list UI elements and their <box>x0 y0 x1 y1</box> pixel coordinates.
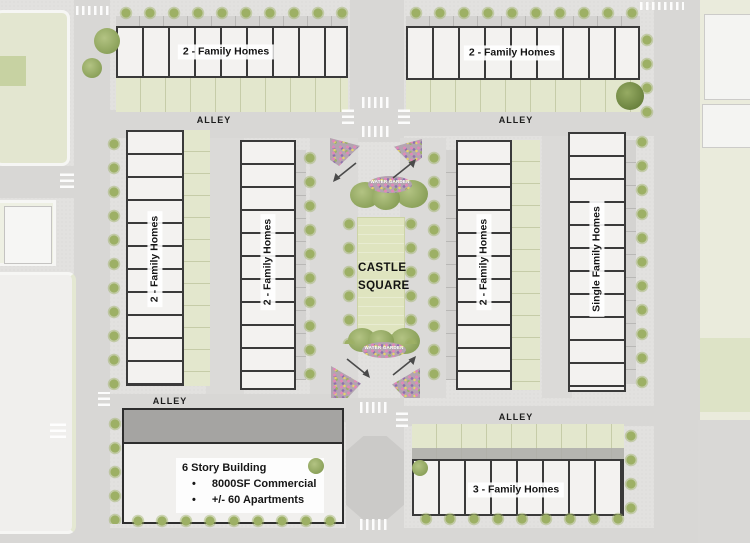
street-east <box>654 0 700 543</box>
crosswalk <box>360 519 388 530</box>
crosswalk <box>640 2 684 10</box>
crosswalk <box>60 172 74 188</box>
flow-arrow-top-right-icon <box>388 157 420 181</box>
offsite-parcel-southwest <box>0 272 76 534</box>
block-label-east: Single Family Homes <box>589 201 604 317</box>
tree-col-west <box>104 132 124 390</box>
tree-row-bottom-right <box>414 510 626 528</box>
alley-label-top-right: ALLEY <box>499 115 534 125</box>
tree-row-building-south <box>126 512 338 530</box>
offsite-building-west <box>4 206 52 264</box>
alley-road-bottom-right <box>396 406 682 426</box>
block-label-center-east: 2 - Family Homes <box>476 214 491 310</box>
yards-center-east <box>512 140 540 390</box>
building-bullet-text: +/- 60 Apartments <box>212 493 304 509</box>
tree-col-building-west <box>106 412 124 524</box>
offsite-green-east <box>700 338 750 412</box>
street-inner-west <box>206 126 244 398</box>
flow-arrow-bottom-right-icon <box>388 354 420 378</box>
alley-label-bottom-right: ALLEY <box>499 412 534 422</box>
block-label-top-left: 2 - Family Homes <box>178 44 274 59</box>
building-bullet-list: • 8000SF Commercial • +/- 60 Apartments <box>182 477 316 509</box>
bullet-icon: • <box>192 493 196 509</box>
tree-icon <box>94 28 120 54</box>
building-bullet-item: • +/- 60 Apartments <box>192 493 316 509</box>
offsite-parcel-northwest <box>0 10 70 166</box>
tree-row-top-left <box>114 4 350 22</box>
block-label-west: 2 - Family Homes <box>147 211 162 307</box>
stoops-center-east <box>446 150 456 380</box>
tree-col-lawn-west <box>340 212 358 344</box>
crosswalk <box>98 392 110 406</box>
crosswalk <box>362 126 390 137</box>
building-bullet-item: • 8000SF Commercial <box>192 477 316 493</box>
crosswalk <box>50 420 66 438</box>
building-title: 6 Story Building <box>182 461 316 477</box>
offsite-green-patch <box>0 56 26 86</box>
bullet-icon: • <box>192 477 196 493</box>
building-roof-band <box>124 410 342 444</box>
tree-col-bottom-right <box>622 424 640 524</box>
crosswalk <box>396 412 408 427</box>
site-plan-canvas: WATER GARDEN WATER GARDEN 6 Story Buildi… <box>0 0 750 543</box>
tree-icon <box>308 458 324 474</box>
crosswalk <box>398 109 410 124</box>
tree-icon <box>616 82 644 110</box>
yards-west <box>184 130 210 386</box>
crosswalk <box>360 402 388 413</box>
alley-label-bottom-left: ALLEY <box>153 396 188 406</box>
tree-row-top-right <box>404 4 644 22</box>
water-garden-top: WATER GARDEN <box>350 176 430 210</box>
offsite-building-east-2 <box>702 104 750 148</box>
block-label-bottom-right: 3 - Family Homes <box>468 482 564 497</box>
crosswalk <box>342 109 354 124</box>
building-bullet-text: 8000SF Commercial <box>212 477 317 493</box>
flow-arrow-bottom-left-icon <box>342 356 374 380</box>
offsite-gray-southeast <box>698 420 750 543</box>
tree-col-northeast <box>636 28 658 128</box>
alley-label-top-left: ALLEY <box>197 115 232 125</box>
crosswalk <box>76 6 110 15</box>
offsite-building-east-1 <box>704 14 750 100</box>
block-label-top-right: 2 - Family Homes <box>464 45 560 60</box>
water-garden-label: WATER GARDEN <box>362 345 406 350</box>
building-annotation: 6 Story Building • 8000SF Commercial • +… <box>176 458 324 513</box>
street-center-north <box>350 0 404 142</box>
tree-icon <box>82 58 102 78</box>
tree-col-center-west <box>300 146 320 386</box>
block-label-center-west: 2 - Family Homes <box>260 214 275 310</box>
yards-top-right <box>406 80 640 112</box>
crosswalk <box>362 97 390 108</box>
yards-top-left <box>116 78 348 112</box>
flow-arrow-top-left-icon <box>329 160 361 184</box>
tree-col-east <box>632 130 652 398</box>
tree-icon <box>412 460 428 476</box>
castle-square-label: CASTLE SQUARE <box>358 260 430 296</box>
plaza-octagon <box>346 436 404 520</box>
